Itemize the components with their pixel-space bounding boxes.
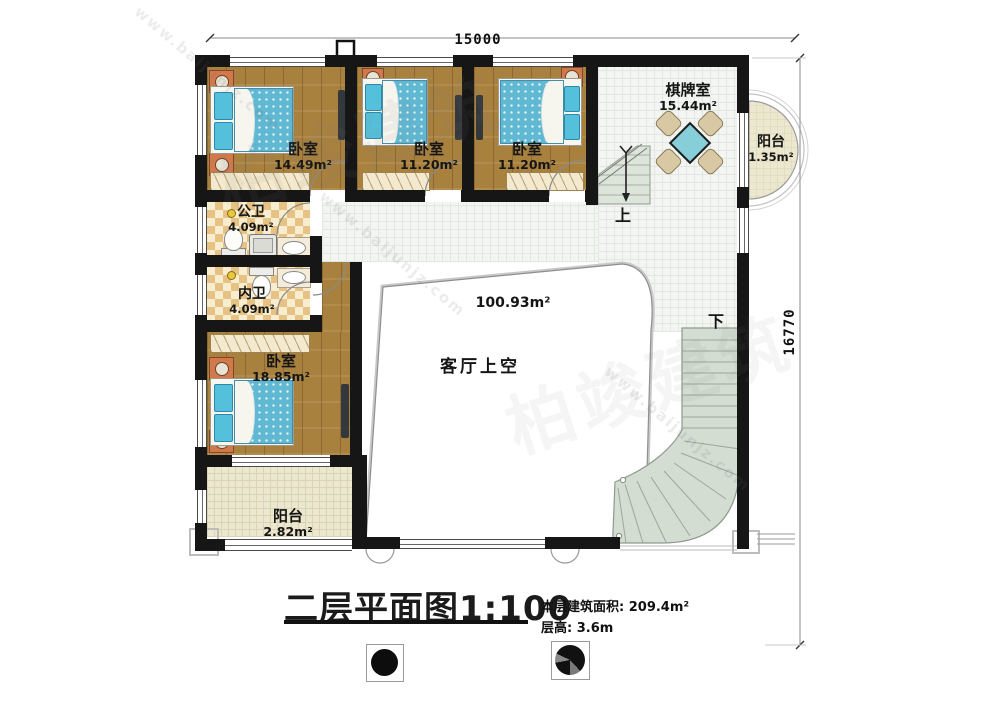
window <box>493 57 573 67</box>
wall <box>195 190 310 202</box>
dimension-top: 15000 <box>454 32 501 48</box>
door-arc <box>277 282 310 315</box>
stair-up-label: 上 <box>615 202 631 226</box>
window <box>377 57 453 67</box>
wall <box>585 190 598 202</box>
stair-up-flight <box>594 144 650 204</box>
window <box>197 380 207 447</box>
wall <box>195 455 232 467</box>
room-name: 阳台 <box>748 135 793 151</box>
column-arc <box>551 549 579 563</box>
wall <box>195 447 207 490</box>
compass-icon <box>555 645 585 675</box>
room-label-bedroom2: 卧室 11.20m² <box>400 141 458 172</box>
stair-down-label: 下 <box>708 308 724 332</box>
room-label-bath-public: 公卫 4.09m² <box>228 205 273 234</box>
window <box>197 207 207 253</box>
floor-height-note: 层高: 3.6m <box>541 617 613 636</box>
sliding-door <box>232 457 330 467</box>
room-label-balcony-right: 阳台 1.35m² <box>748 135 793 164</box>
legend-circle-symbol <box>366 644 404 682</box>
wall <box>737 187 749 208</box>
room-name: 阳台 <box>263 508 312 525</box>
window <box>230 57 325 67</box>
window <box>197 85 207 155</box>
room-area: 1.35m² <box>748 151 793 164</box>
wall <box>737 55 749 113</box>
room-area: 11.20m² <box>498 158 556 172</box>
room-area: 11.20m² <box>400 158 458 172</box>
column-arc <box>366 549 394 563</box>
balcony-railing <box>197 490 207 523</box>
room-label-bath-private: 内卫 4.09m² <box>229 287 274 316</box>
wall <box>737 253 749 549</box>
wall <box>345 190 425 202</box>
wall <box>195 255 322 267</box>
wall <box>195 539 225 551</box>
solid-circle-icon <box>371 649 398 676</box>
compass-symbol <box>551 641 590 680</box>
room-area: 4.09m² <box>229 303 274 316</box>
window <box>400 539 545 549</box>
balcony-railing <box>225 539 352 551</box>
living-void-name: 客厅上空 <box>440 352 520 377</box>
room-name: 卧室 <box>274 141 332 158</box>
wall <box>545 537 620 549</box>
room-name: 卧室 <box>252 353 310 370</box>
wall <box>195 55 207 85</box>
wall <box>586 55 598 205</box>
floor-area-note: 本层建筑面积: 209.4m² <box>541 596 689 615</box>
room-name: 棋牌室 <box>659 82 717 99</box>
wall <box>462 55 474 202</box>
wall <box>573 55 749 67</box>
room-name: 卧室 <box>400 141 458 158</box>
room-label-bedroom3: 卧室 11.20m² <box>498 141 556 172</box>
title-underline <box>284 620 528 624</box>
room-label-bedroom1: 卧室 14.49m² <box>274 141 332 172</box>
living-void-area: 100.93m² <box>476 295 551 311</box>
room-label-bedroom4: 卧室 18.85m² <box>252 353 310 384</box>
room-area: 18.85m² <box>252 370 310 384</box>
room-name: 卧室 <box>498 141 556 158</box>
room-area: 2.82m² <box>263 525 312 539</box>
room-name: 公卫 <box>228 205 273 221</box>
floorplan-canvas: 卧室 14.49m² 卧室 11.20m² 卧室 11.20m² 棋牌室 15.… <box>0 0 1000 706</box>
wall <box>352 467 367 549</box>
room-area: 15.44m² <box>659 99 717 113</box>
wall <box>310 267 322 283</box>
room-name: 内卫 <box>229 287 274 303</box>
wall <box>350 262 362 467</box>
dimension-right: 16770 <box>782 308 798 355</box>
room-label-chess: 棋牌室 15.44m² <box>659 82 717 113</box>
window <box>197 275 207 315</box>
wall <box>345 55 357 202</box>
room-area: 4.09m² <box>228 221 273 234</box>
room-area: 14.49m² <box>274 158 332 172</box>
wall <box>461 190 549 202</box>
railing <box>757 534 795 544</box>
window <box>739 208 749 253</box>
room-label-balcony-bottom: 阳台 2.82m² <box>263 508 312 539</box>
door-arc <box>277 203 310 236</box>
wall <box>195 320 322 332</box>
